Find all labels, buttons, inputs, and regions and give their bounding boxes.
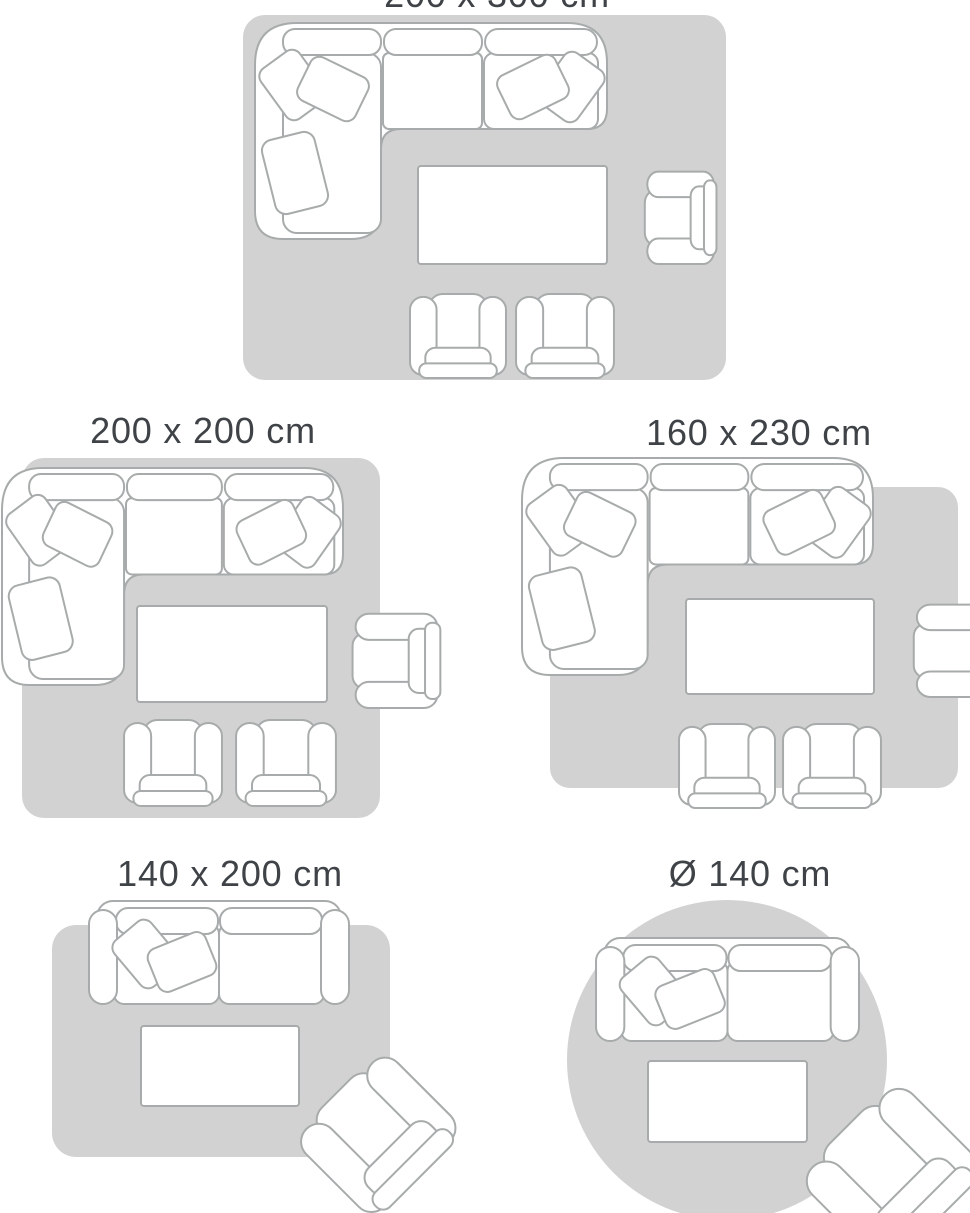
coffee-table-icon [136, 605, 328, 703]
coffee-table-icon [685, 598, 875, 695]
small-armchair-icon [515, 293, 615, 379]
tilted-armchair-icon [284, 1066, 416, 1198]
coffee-table-icon [140, 1025, 300, 1107]
armchair-icon [904, 595, 970, 698]
size-label: 140 x 200 cm [117, 853, 343, 894]
size-label: 200 x 200 cm [90, 410, 316, 451]
small-armchair-icon [678, 723, 776, 809]
two-seater-sofa-icon [595, 937, 860, 1047]
coffee-table-icon [647, 1060, 808, 1143]
size-label: Ø 140 cm [669, 853, 831, 894]
tilted-armchair-icon [788, 1098, 933, 1213]
armchair-icon [343, 604, 441, 709]
size-label: 200 x 300 cm [384, 0, 610, 15]
small-armchair-icon [409, 293, 507, 379]
two-seater-sofa-icon [88, 900, 350, 1010]
small-armchair-icon [235, 719, 337, 807]
armchair-icon [637, 162, 717, 265]
coffee-table-icon [417, 165, 608, 265]
size-label: 160 x 230 cm [646, 412, 872, 453]
small-armchair-icon [782, 723, 882, 809]
small-armchair-icon [123, 719, 223, 807]
rug-size-guide: 200 x 300 cm 200 x 200 cm 160 x 230 cm 1… [0, 0, 970, 1213]
